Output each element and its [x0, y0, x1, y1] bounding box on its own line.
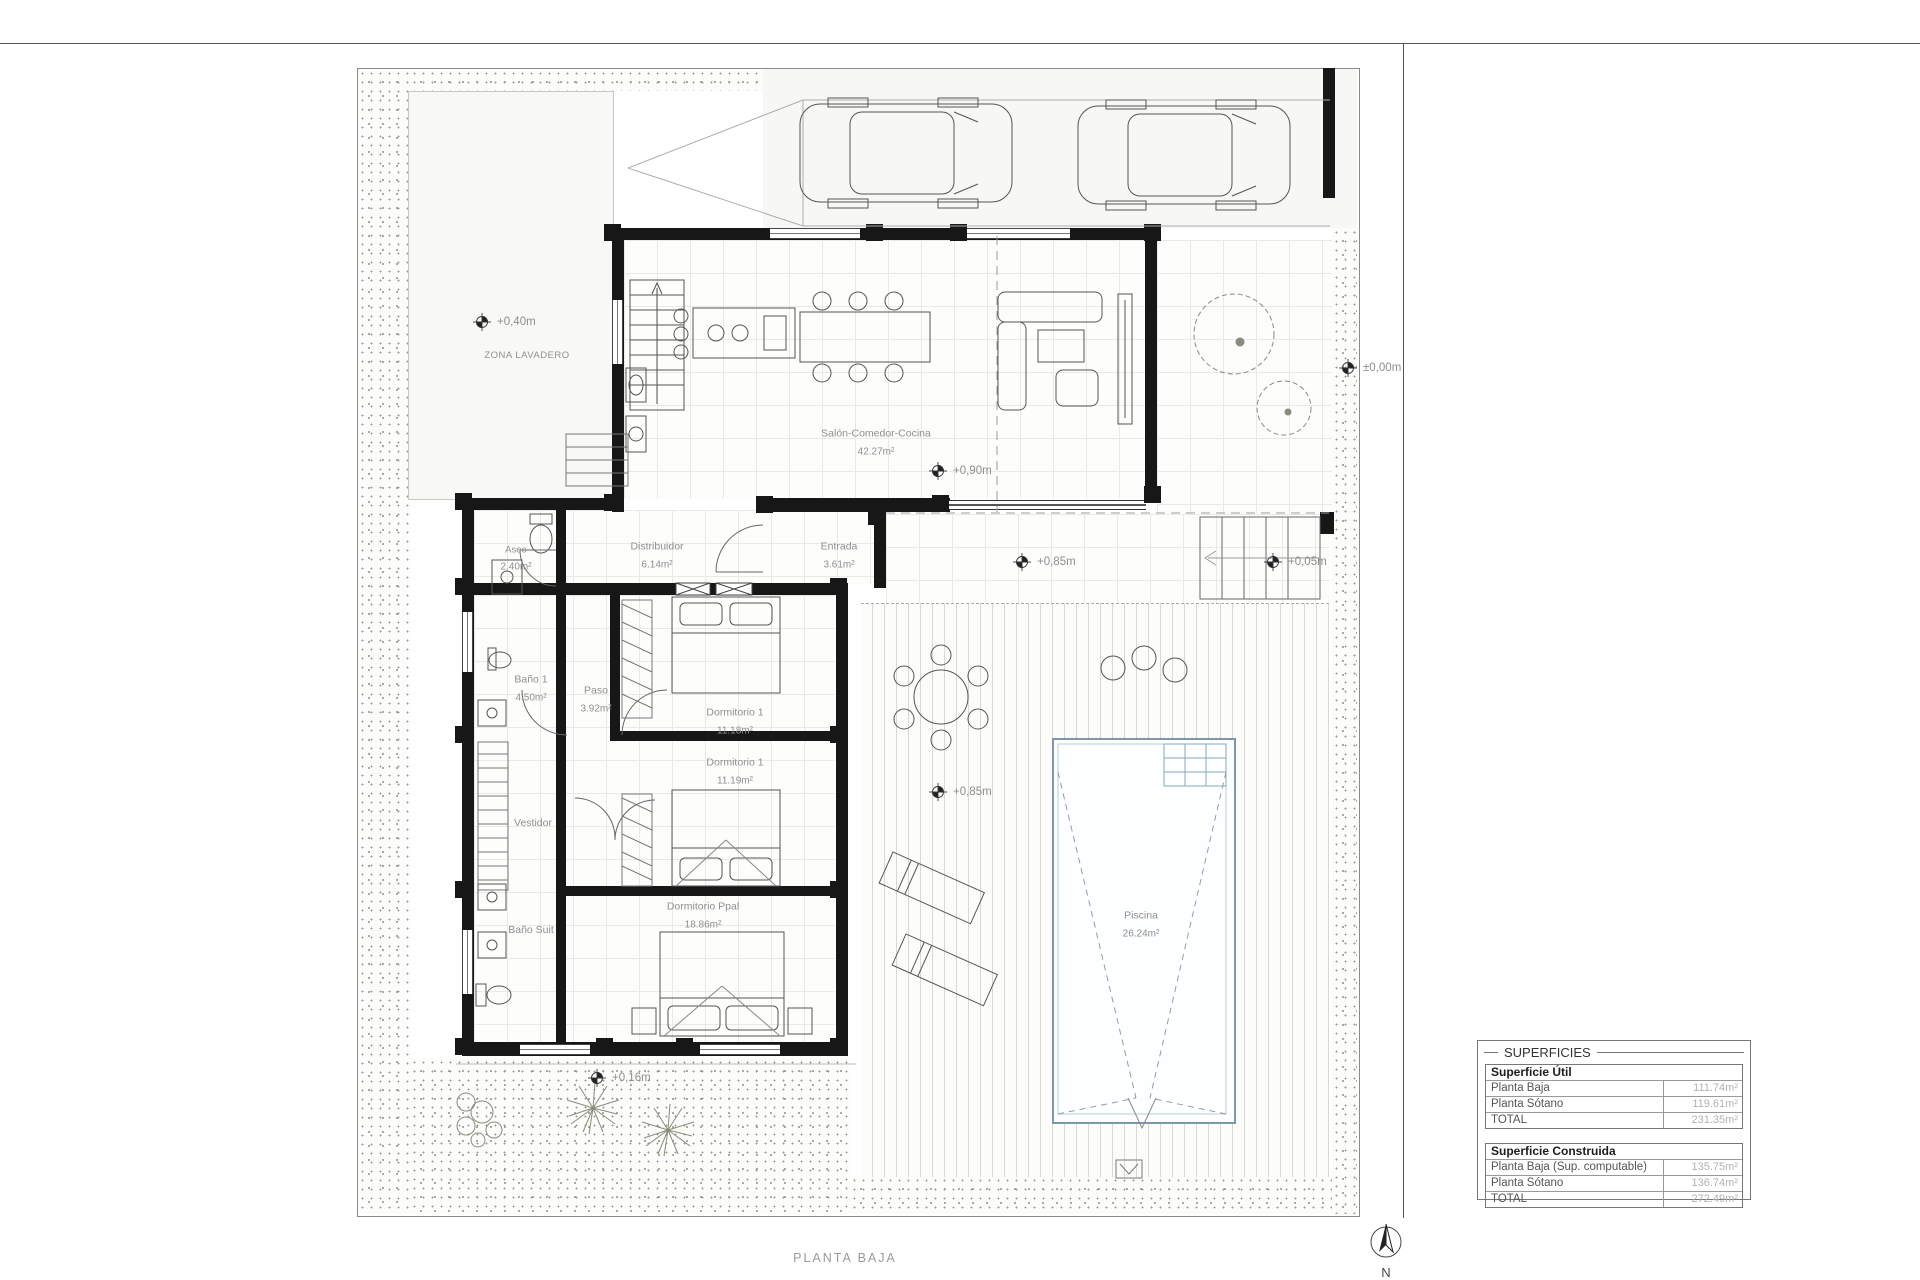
- pool-detail: [1058, 744, 1226, 1178]
- superficies-table: SUPERFICIES Superficie Útil Planta Baja …: [1477, 1040, 1751, 1200]
- deck-round-table: [894, 645, 988, 750]
- room-name: Dormitorio Ppal: [667, 899, 739, 917]
- superficie-util-box: Superficie Útil Planta Baja 111.74m² Pla…: [1485, 1064, 1743, 1129]
- room-label-master: Dormitorio Ppal 18.86m²: [667, 899, 739, 934]
- level-marker-icon: [929, 783, 947, 801]
- row-value: 136.74m²: [1663, 1176, 1742, 1191]
- zona-lavadero-label: ZONA LAVADERO: [484, 348, 569, 364]
- north-label: N: [1362, 1265, 1410, 1280]
- room-name: Baño Suit: [508, 922, 554, 940]
- room-area: 18.86m²: [667, 916, 739, 933]
- table-row: Planta Sótano 136.74m²: [1486, 1175, 1742, 1191]
- level-marker-icon: [1339, 359, 1357, 377]
- room-label-entrada: Entrada 3.61m²: [821, 539, 858, 574]
- room-name: Piscina: [1123, 908, 1160, 926]
- room-area: 6.14m²: [630, 556, 683, 573]
- room-name: Dormitorio 1: [706, 755, 763, 773]
- superficies-title-row: SUPERFICIES: [1478, 1041, 1750, 1061]
- room-name: Entrada: [821, 539, 858, 557]
- room-area: 2.40m²: [500, 559, 531, 576]
- table-row: Planta Sótano 119.61m²: [1486, 1096, 1742, 1112]
- table-row: TOTAL 272.49m²: [1486, 1191, 1742, 1207]
- room-name: Vestidor: [514, 815, 552, 833]
- row-label: Planta Baja (Sup. computable): [1486, 1160, 1663, 1175]
- room-name: Paso: [580, 683, 611, 701]
- room-name: Salón-Comedor-Cocina: [821, 426, 931, 444]
- room-label-paso: Paso 3.92m²: [580, 683, 611, 718]
- table-row: TOTAL 231.35m²: [1486, 1112, 1742, 1128]
- room-label-piscina: Piscina 26.24m²: [1123, 908, 1160, 943]
- floor-plan-sheet: Salón-Comedor-Cocina 42.27m² Distribuido…: [0, 0, 1920, 1280]
- section-header: Superficie Construida: [1486, 1144, 1742, 1159]
- elevation-value: +0,85m: [1037, 556, 1076, 568]
- room-area: 42.27m²: [821, 443, 931, 460]
- elevation-value: +0,85m: [953, 786, 992, 798]
- row-value: 111.74m²: [1663, 1081, 1742, 1096]
- banosuit-fixtures: [476, 884, 511, 1006]
- room-name: Aseo: [500, 542, 531, 558]
- table-row: Planta Baja (Sup. computable) 135.75m²: [1486, 1159, 1742, 1175]
- car-icon: [1078, 100, 1290, 210]
- room-area: 11.18m²: [706, 722, 763, 739]
- elevation-marker: +0,05m: [1264, 553, 1327, 571]
- room-label-bano1: Baño 1 4.50m²: [514, 672, 547, 707]
- bed-dormitorio-2: [672, 790, 780, 886]
- level-marker-icon: [473, 313, 491, 331]
- level-marker-icon: [1013, 553, 1031, 571]
- row-label: TOTAL: [1486, 1113, 1663, 1128]
- elevation-value: +0,16m: [612, 1072, 651, 1084]
- superficies-title: SUPERFICIES: [1504, 1045, 1591, 1060]
- north-arrow-icon: [1364, 1222, 1408, 1262]
- kitchen-island: [626, 308, 795, 452]
- north-arrow: N: [1362, 1222, 1410, 1280]
- staircase: [630, 280, 684, 410]
- plan-title: PLANTA BAJA: [793, 1251, 897, 1265]
- sofa-set: [998, 292, 1132, 424]
- bed-master: [632, 932, 812, 1036]
- elevation-marker: ±0,00m: [1339, 359, 1401, 377]
- steps-lavadero: [566, 434, 628, 486]
- dining-table: [800, 292, 930, 382]
- wardrobe-hatch: [478, 600, 652, 890]
- room-label-vestidor: Vestidor: [514, 815, 552, 833]
- row-value: 135.75m²: [1663, 1160, 1742, 1175]
- divider: [1484, 1052, 1498, 1053]
- area-name: ZONA LAVADERO: [484, 348, 569, 364]
- level-marker-icon: [929, 462, 947, 480]
- elevation-marker: +0,40m: [473, 313, 536, 331]
- elevation-marker: +0,16m: [588, 1069, 651, 1087]
- row-label: TOTAL: [1486, 1192, 1663, 1207]
- glass-block-windows: [676, 583, 752, 595]
- room-area: 26.24m²: [1123, 925, 1160, 942]
- table-row: Planta Baja 111.74m²: [1486, 1080, 1742, 1096]
- level-marker-icon: [1264, 553, 1282, 571]
- row-label: Planta Baja: [1486, 1081, 1663, 1096]
- room-area: 4.50m²: [514, 689, 547, 706]
- room-name: Dormitorio 1: [706, 705, 763, 723]
- room-name: Distribuidor: [630, 539, 683, 557]
- section-header: Superficie Útil: [1486, 1065, 1742, 1080]
- elevation-value: ±0,00m: [1363, 362, 1401, 374]
- palm-plant-icon: [457, 1082, 694, 1156]
- elevation-marker: +0,90m: [929, 462, 992, 480]
- room-area: 3.92m²: [580, 700, 611, 717]
- elevation-value: +0,05m: [1288, 556, 1327, 568]
- level-marker-icon: [588, 1069, 606, 1087]
- room-label-salon: Salón-Comedor-Cocina 42.27m²: [821, 426, 931, 461]
- room-label-distribuidor: Distribuidor 6.14m²: [630, 539, 683, 574]
- room-label-aseo: Aseo 2.40m²: [500, 542, 531, 575]
- bano1-fixtures: [478, 648, 511, 726]
- row-value: 119.61m²: [1663, 1097, 1742, 1112]
- room-name: Baño 1: [514, 672, 547, 690]
- divider: [1597, 1052, 1744, 1053]
- row-label: Planta Sótano: [1486, 1176, 1663, 1191]
- car-icon: [800, 98, 1012, 208]
- room-label-dorm2: Dormitorio 1 11.19m²: [706, 755, 763, 790]
- elevation-value: +0,90m: [953, 465, 992, 477]
- tree-icon: [1194, 294, 1311, 435]
- row-value: 272.49m²: [1663, 1192, 1742, 1207]
- room-label-banosuit: Baño Suit: [508, 922, 554, 940]
- elevation-value: +0,40m: [497, 316, 536, 328]
- sun-lounger: [879, 852, 997, 1006]
- elevation-marker: +0,85m: [1013, 553, 1076, 571]
- row-label: Planta Sótano: [1486, 1097, 1663, 1112]
- room-area: 3.61m²: [821, 556, 858, 573]
- driveway-sight-lines: [628, 100, 1330, 226]
- room-area: 11.19m²: [706, 772, 763, 789]
- room-label-dorm1: Dormitorio 1 11.18m²: [706, 705, 763, 740]
- bed-dormitorio-1: [672, 597, 780, 693]
- superficie-construida-box: Superficie Construida Planta Baja (Sup. …: [1485, 1143, 1743, 1208]
- row-value: 231.35m²: [1663, 1113, 1742, 1128]
- elevation-marker: +0,85m: [929, 783, 992, 801]
- deck-poufs: [1101, 646, 1187, 682]
